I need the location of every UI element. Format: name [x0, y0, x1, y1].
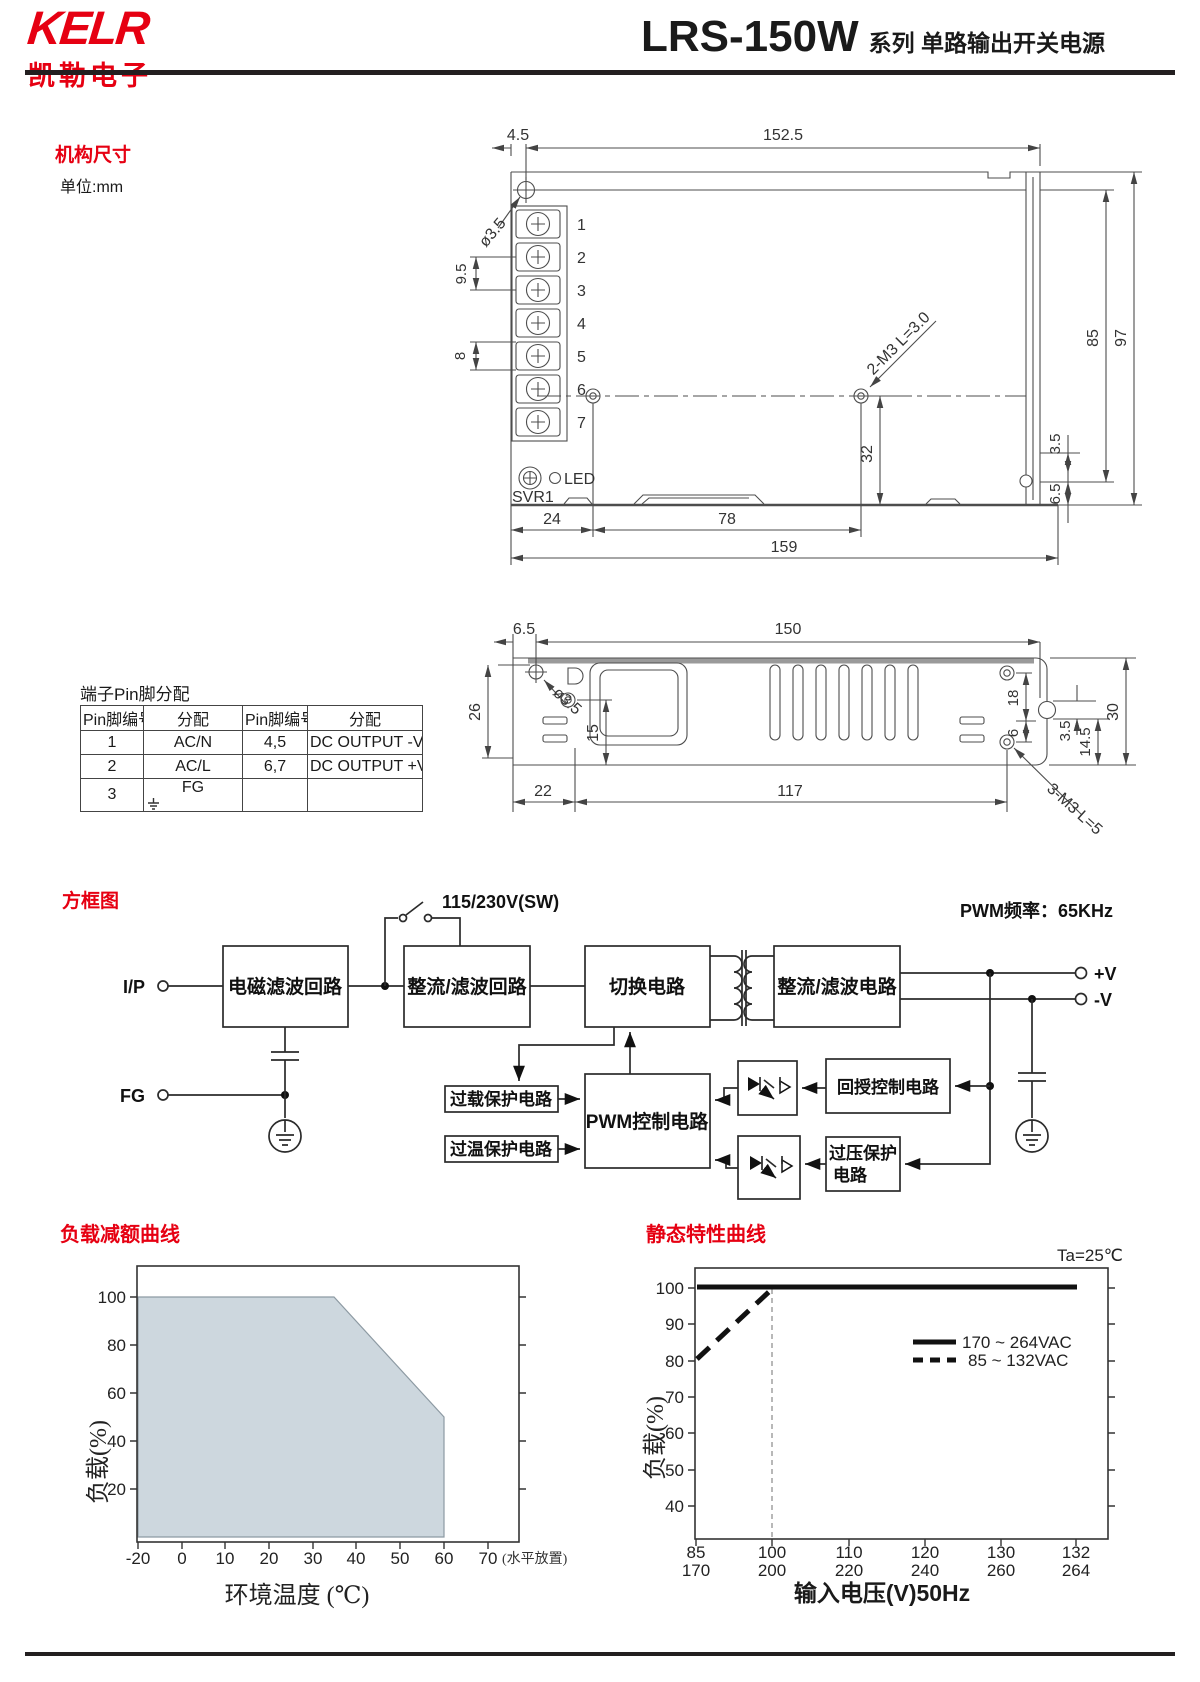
xtick-primary: 132 [1062, 1543, 1090, 1562]
xtick: 30 [304, 1549, 323, 1568]
datasheet-page: KELR 凯勒电子 LRS-150W系列 单路输出开关电源 机构尺寸 单位:mm [0, 0, 1200, 1682]
ambient-temp-annotation: Ta=25℃ [1057, 1246, 1123, 1265]
xtick-secondary: 170 [682, 1561, 710, 1580]
dim-8: 8 [452, 352, 469, 360]
pin-table-title: 端子Pin脚分配 [80, 680, 190, 705]
xtick-secondary: 260 [987, 1561, 1015, 1580]
xtick-secondary: 240 [911, 1561, 939, 1580]
block-ovp-line1: 过压保护 [829, 1143, 897, 1163]
top-view-drawing: 1 2 3 4 5 6 7 ø3.5 2-M3 L=3.0 4.5 152.5 … [440, 100, 1160, 575]
static-characteristic-chart: Ta=25℃ 100 90 80 70 60 50 40 170 ~ 264VA… [620, 1210, 1150, 1630]
page-title: LRS-150W系列 单路输出开关电源 [500, 12, 1105, 62]
xtick-note: (水平放置) [502, 1551, 568, 1567]
x-axis-title: 输入电压(V)50Hz [794, 1580, 970, 1606]
dim-18: 18 [1005, 690, 1022, 707]
output-vminus-label: -V [1094, 990, 1112, 1010]
input-terminal-label: I/P [123, 977, 145, 997]
derating-chart: 100 80 60 40 20 -20 0 10 20 30 40 50 60 … [40, 1210, 600, 1630]
legend-label: 170 ~ 264VAC [962, 1333, 1072, 1352]
dim-14-5: 14.5 [1077, 727, 1094, 756]
ytick: 80 [665, 1352, 684, 1371]
x-axis-title: 环境温度 (℃) [225, 1582, 370, 1609]
cell: 3 [81, 779, 144, 812]
fg-label: FG [182, 779, 204, 796]
table-row: 1 AC/N 4,5 DC OUTPUT -V [81, 731, 423, 755]
ytick: 80 [107, 1336, 126, 1355]
y-axis-title: 负载(%) [85, 1420, 112, 1504]
block-switching: 切换电路 [609, 975, 686, 998]
table-row: 2 AC/L 6,7 DC OUTPUT +V [81, 755, 423, 779]
ytick: 100 [656, 1279, 684, 1298]
unit-label: 单位:mm [60, 173, 123, 197]
dim-159: 159 [771, 539, 798, 556]
earth-ground-icon [146, 797, 161, 811]
cell: FG [144, 779, 243, 812]
pin-assignment-table: Pin脚编号 分配 Pin脚编号 分配 1 AC/N 4,5 DC OUTPUT… [80, 705, 423, 812]
block-overtemp-protection: 过温保护电路 [450, 1139, 553, 1159]
dim-6-5: 6.5 [513, 621, 535, 638]
dim-15: 15 [585, 724, 602, 742]
dim-117: 117 [777, 783, 803, 800]
table-header-row: Pin脚编号 分配 Pin脚编号 分配 [81, 706, 423, 731]
dim-6: 6 [1005, 729, 1022, 737]
xtick: 40 [347, 1549, 366, 1568]
svr-label: SVR1 [512, 489, 554, 506]
xtick: 60 [435, 1549, 454, 1568]
cell: 6,7 [243, 755, 308, 779]
pin-number: 5 [577, 349, 586, 366]
table-row: 3 FG [81, 779, 423, 812]
cell: DC OUTPUT -V [308, 731, 423, 755]
section-heading-mechanical: 机构尺寸 [55, 140, 131, 167]
block-rectifier-input: 整流/滤波回路 [407, 975, 527, 998]
transformer-symbol [710, 950, 774, 1026]
col-header: Pin脚编号 [243, 706, 308, 731]
header-rule [25, 70, 1175, 75]
chart-legend: 170 ~ 264VAC 85 ~ 132VAC [913, 1333, 1072, 1370]
hole-dia-label: ø3.5 [476, 215, 510, 251]
xtick-primary: 110 [835, 1543, 862, 1562]
side-view-drawing: ø3.5 6.5 150 26 15 [440, 590, 1140, 845]
xtick: 20 [260, 1549, 279, 1568]
pin-number: 7 [577, 415, 586, 432]
dim-6-5: 6.5 [1047, 484, 1064, 505]
pin-number: 4 [577, 316, 586, 333]
dim-152-5: 152.5 [763, 127, 803, 144]
block-feedback-control: 回授控制电路 [837, 1077, 940, 1097]
pin-number: 2 [577, 250, 586, 267]
cell: 4,5 [243, 731, 308, 755]
cell: 2 [81, 755, 144, 779]
led-label: LED [564, 471, 595, 488]
pin-number: 1 [577, 217, 586, 234]
xtick-primary: 120 [911, 1543, 939, 1562]
block-rectifier-output: 整流/滤波电路 [777, 975, 897, 998]
dim-150: 150 [775, 621, 802, 638]
hole-dia-label: ø3.5 [549, 684, 584, 718]
pwm-frequency-label: PWM频率：65KHz [960, 900, 1113, 921]
col-header: Pin脚编号 [81, 706, 144, 731]
voltage-switch-label: 115/230V(SW) [442, 892, 559, 912]
ytick: 90 [665, 1315, 684, 1334]
block-emi-filter: 电磁滤波回路 [228, 975, 343, 998]
dim-97: 97 [1113, 329, 1130, 347]
block-ovp-line2: 电路 [833, 1165, 868, 1185]
xtick: -20 [126, 1549, 151, 1568]
xtick-secondary: 220 [835, 1561, 863, 1580]
y-axis-title: 负载(%) [642, 1396, 669, 1480]
xtick-primary: 85 [687, 1543, 706, 1562]
model-suffix: 系列 单路输出开关电源 [869, 30, 1105, 56]
cell: DC OUTPUT +V [308, 755, 423, 779]
xtick-primary: 100 [758, 1543, 786, 1562]
xtick: 50 [391, 1549, 410, 1568]
pin-number: 3 [577, 283, 586, 300]
col-header: 分配 [144, 706, 243, 731]
cell: 1 [81, 731, 144, 755]
block-pwm-control: PWM控制电路 [586, 1110, 709, 1133]
terminal-screws: 1 2 3 4 5 6 7 [516, 210, 586, 436]
xtick: 0 [177, 1549, 186, 1568]
xtick: 70 [479, 1549, 498, 1568]
xtick-secondary: 264 [1062, 1561, 1090, 1580]
dim-4-5: 4.5 [507, 127, 529, 144]
dim-24: 24 [543, 511, 561, 528]
block-overload-protection: 过载保护电路 [450, 1089, 553, 1109]
dim-78: 78 [718, 511, 736, 528]
block-diagram: I/P FG 电磁滤波回路 115/230V(SW) 整流/滤波回路 切换电路 … [40, 860, 1160, 1205]
ytick: 40 [665, 1497, 684, 1516]
dim-26: 26 [467, 703, 484, 721]
derating-area [138, 1297, 444, 1537]
dim-9-5: 9.5 [453, 264, 470, 285]
cell [243, 779, 308, 812]
cell: AC/N [144, 731, 243, 755]
model-name: LRS-150W [641, 12, 859, 61]
m3-label: 2-M3 L=3.0 [864, 309, 934, 379]
col-header: 分配 [308, 706, 423, 731]
footer-rule [25, 1652, 1175, 1656]
dim-3-5: 3.5 [1057, 721, 1074, 742]
xtick-primary: 130 [987, 1543, 1015, 1562]
series-low-range [697, 1289, 772, 1359]
dim-22: 22 [534, 783, 552, 800]
fg-terminal-label: FG [120, 1086, 145, 1106]
ytick: 60 [107, 1384, 126, 1403]
ytick: 100 [98, 1288, 126, 1307]
xtick: 10 [216, 1549, 235, 1568]
dim-3-5: 3.5 [1047, 434, 1064, 455]
dim-85: 85 [1085, 329, 1102, 347]
cell [308, 779, 423, 812]
vent-slots [770, 665, 918, 740]
xtick-secondary: 200 [758, 1561, 786, 1580]
brand-logo-text: KELR [26, 4, 155, 51]
dim-30: 30 [1105, 703, 1122, 721]
cell: AC/L [144, 755, 243, 779]
m3-label: 3-M3 L=5 [1043, 780, 1105, 838]
brand-logo: KELR 凯勒电子 [28, 4, 152, 93]
legend-label: 85 ~ 132VAC [968, 1351, 1068, 1370]
output-vplus-label: +V [1094, 964, 1117, 984]
